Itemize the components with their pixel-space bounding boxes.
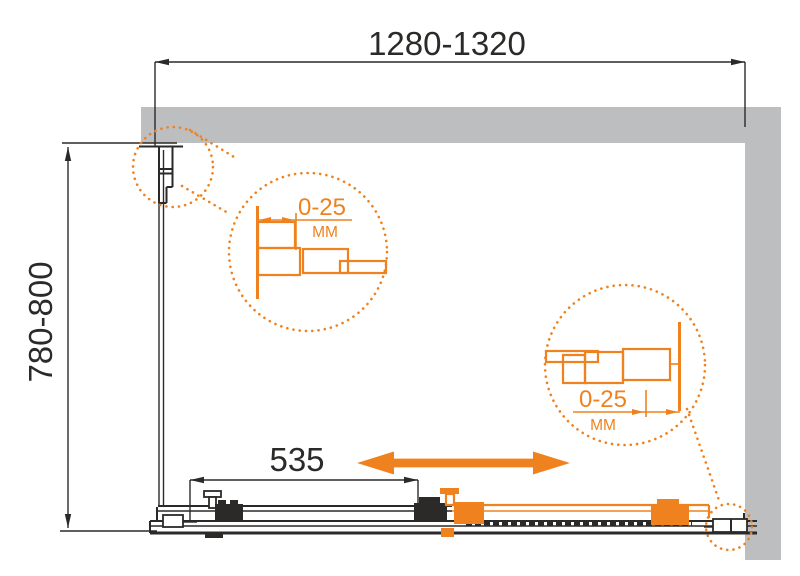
sliding-door-orange	[440, 488, 709, 537]
door-roller-black-left	[204, 491, 243, 521]
shower-enclosure-dimension-diagram: 1280-1320 780-800	[0, 0, 800, 576]
dimension-arrow-left	[190, 477, 204, 483]
adjustment-unit-label-left: MM	[312, 224, 338, 241]
door-roller-black-mid	[414, 497, 447, 521]
dimension-arrow-left	[155, 59, 169, 65]
detail-callout-left: 0-25 MM	[133, 127, 387, 331]
door-roller-orange-right	[651, 499, 689, 525]
adjustment-range-label-left: 0-25	[298, 194, 346, 221]
dimension-arrow-right	[404, 477, 418, 483]
wall-right	[745, 107, 781, 560]
diagram-svg: 1280-1320 780-800	[0, 0, 800, 576]
door-dimension-label: 535	[269, 441, 324, 478]
wall-top	[141, 107, 781, 143]
dimension-arrow-top	[65, 147, 71, 161]
slide-direction-arrow	[357, 452, 570, 475]
dimension-arrow-right	[731, 59, 745, 65]
floor-anchor-pad	[205, 533, 223, 538]
dimension-arrow-bottom	[65, 514, 71, 528]
callout-connector	[687, 409, 720, 503]
adjustment-unit-label-right: MM	[590, 417, 616, 434]
dimension-depth: 780-800	[22, 143, 177, 531]
width-dimension-label: 1280-1320	[368, 25, 526, 62]
depth-dimension-label: 780-800	[22, 261, 59, 382]
wall-profile-bottom-right	[704, 513, 747, 532]
adjustment-range-label-right: 0-25	[579, 386, 627, 413]
